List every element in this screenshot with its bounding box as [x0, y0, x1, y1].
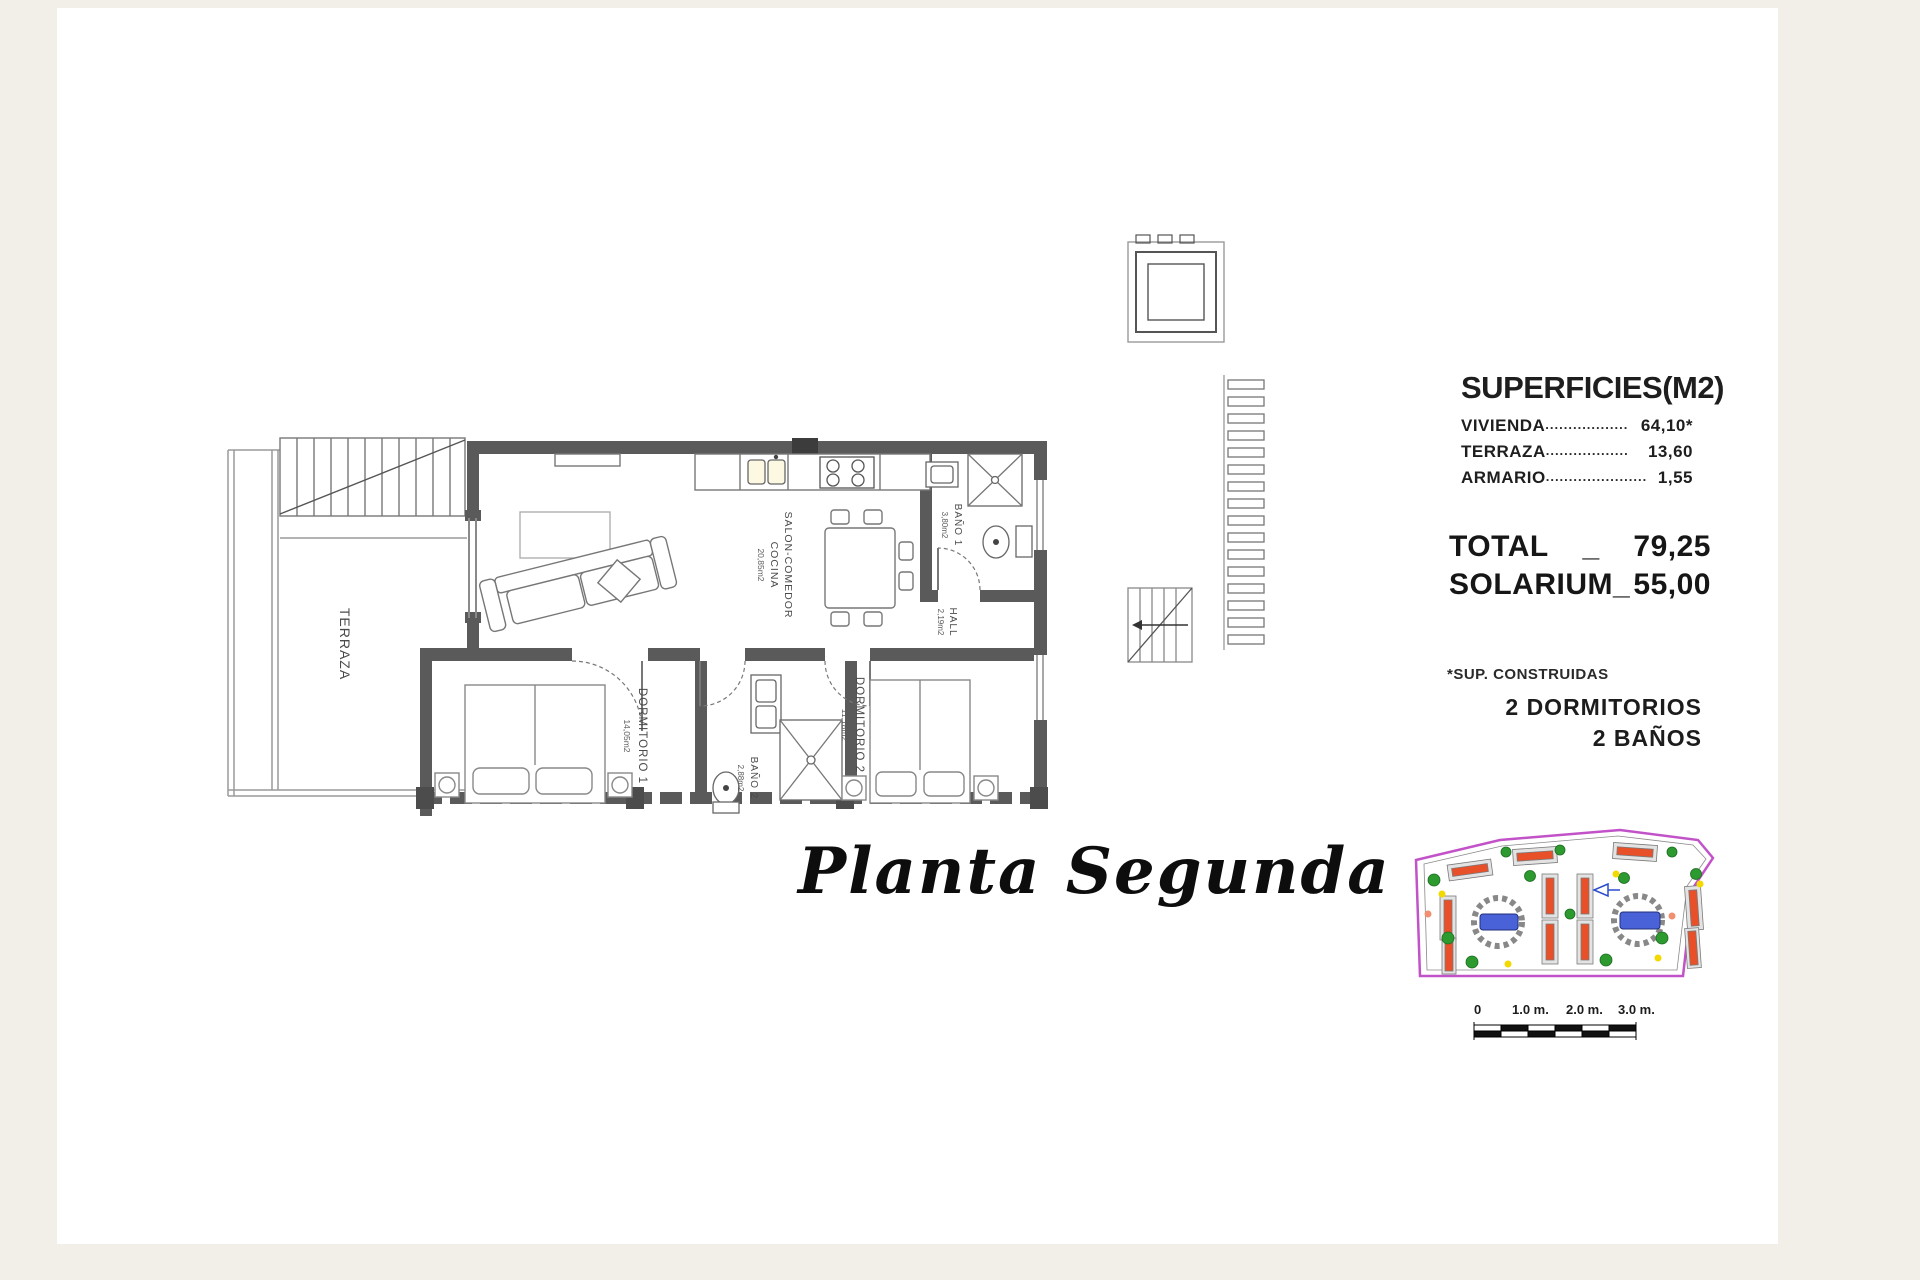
- label-salon-line2: COCINA: [768, 542, 780, 589]
- row-label: TERRAZA: [1461, 442, 1546, 462]
- superficies-heading: SUPERFICIES(M2): [1461, 370, 1724, 406]
- site-boundary-inner: [1424, 836, 1706, 970]
- superficies-table: VIVIENDA .................. 64,10* TERRA…: [1461, 416, 1693, 494]
- site-pointer-icon: [1594, 884, 1620, 896]
- label-hall: HALL: [947, 607, 958, 636]
- site-pools: [1474, 896, 1662, 946]
- scale-label-0: 0: [1474, 1002, 1481, 1017]
- scale-label-1: 1.0 m.: [1512, 1002, 1549, 1017]
- sofa: [479, 536, 678, 633]
- solarium-row: SOLARIUM_ 55,00: [1449, 566, 1711, 604]
- feature-banos: 2 BAÑOS: [1440, 723, 1702, 754]
- footnote: *SUP. CONSTRUIDAS: [1447, 666, 1609, 683]
- row-leader: ......................: [1546, 469, 1658, 484]
- row-value: 13,60: [1648, 442, 1693, 462]
- row-label: VIVIENDA: [1461, 416, 1545, 436]
- label-dorm2-area: 11,18m2: [840, 709, 850, 742]
- label-bano2: BAÑO 2: [748, 757, 761, 800]
- row-label: ARMARIO: [1461, 468, 1546, 488]
- solarium-label: SOLARIUM_: [1449, 566, 1630, 604]
- feature-dormitorios: 2 DORMITORIOS: [1440, 692, 1702, 723]
- table-row: ARMARIO ...................... 1,55: [1461, 468, 1693, 494]
- label-dorm1: DORMITORIO 1: [636, 688, 648, 784]
- scale-label-3: 3.0 m.: [1618, 1002, 1655, 1017]
- table-row: TERRAZA .................. 13,60: [1461, 442, 1693, 468]
- site-plan: [1410, 818, 1722, 990]
- row-leader: ..................: [1546, 443, 1648, 458]
- total-sep: _: [1582, 528, 1599, 566]
- label-terraza: TERRAZA: [337, 608, 353, 680]
- label-salon: SALON-COMEDOR: [782, 512, 794, 619]
- elevator: [1128, 235, 1224, 342]
- label-hall-area: 2,19m2: [936, 609, 945, 636]
- plan-title: Planta Segunda: [798, 834, 1391, 909]
- total-row: TOTAL _ 79,25: [1449, 528, 1711, 566]
- label-salon-area: 20,85m2: [756, 548, 766, 581]
- label-dorm2: DORMITORIO 2: [853, 677, 865, 773]
- scale-bar: [1470, 1022, 1650, 1044]
- label-bano1-area: 3,80m2: [940, 512, 949, 539]
- kitchen-stove: [820, 457, 874, 488]
- dining-table: [825, 510, 913, 626]
- terrace-slider-door: [469, 518, 476, 618]
- label-bano1: BAÑO 1: [952, 504, 965, 547]
- stairwell-block: [1128, 235, 1264, 662]
- scale-label-2: 2.0 m.: [1566, 1002, 1603, 1017]
- label-bano2-area: 2,88m2: [736, 765, 745, 792]
- solarium-value: 55,00: [1633, 566, 1711, 604]
- table-row: VIVIENDA .................. 64,10*: [1461, 416, 1693, 442]
- row-value: 1,55: [1658, 468, 1693, 488]
- total-value: 79,25: [1633, 528, 1711, 566]
- row-value: 64,10*: [1641, 416, 1693, 436]
- features-block: 2 DORMITORIOS 2 BAÑOS: [1440, 692, 1702, 754]
- terrace-stairs: [280, 438, 465, 516]
- page: { "title": "Planta Segunda", "panel": { …: [0, 0, 1920, 1280]
- label-dorm1-area: 14,05m2: [622, 719, 632, 752]
- row-leader: ..................: [1545, 417, 1641, 432]
- lower-stair-flight: [1128, 588, 1192, 662]
- total-label: TOTAL: [1449, 528, 1549, 566]
- totals-block: TOTAL _ 79,25 SOLARIUM_ 55,00: [1449, 528, 1711, 604]
- rug: [520, 512, 610, 558]
- bed-dorm1: [435, 685, 632, 803]
- bath1-fixtures: [926, 454, 1032, 558]
- stair-treads: [1224, 375, 1264, 650]
